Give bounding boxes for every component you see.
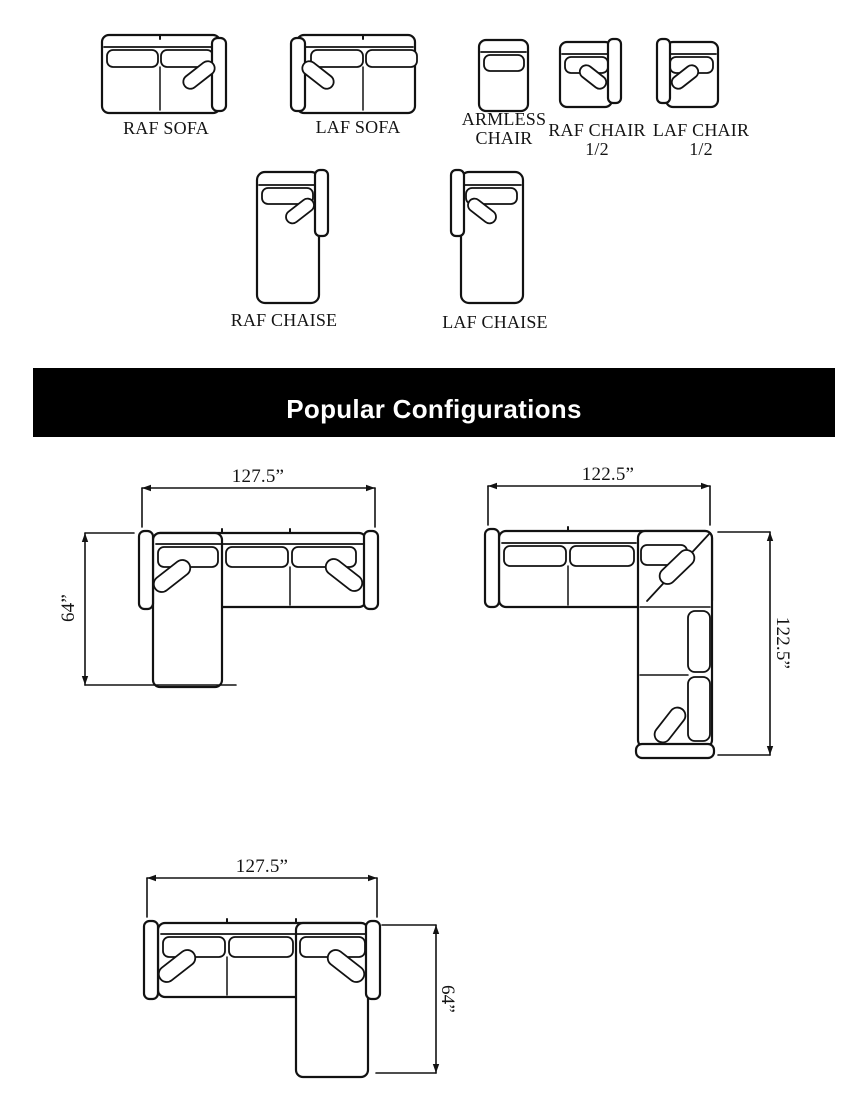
- banner-title: Popular Configurations: [286, 394, 581, 425]
- laf-chaise-drawing: [451, 170, 523, 303]
- laf-chair-half-drawing: [657, 39, 718, 107]
- label-laf-chaise: LAF CHAISE: [442, 313, 548, 332]
- popular-configurations-banner: Popular Configurations: [33, 368, 835, 437]
- armless-chair-drawing: [479, 40, 528, 111]
- config1-width-dimension: 127.5”: [232, 466, 284, 488]
- config-1-drawing: [82, 485, 378, 687]
- config1-depth-dimension: 64”: [58, 594, 80, 622]
- config2-depth-dimension: 122.5”: [771, 617, 793, 669]
- label-raf-sofa: RAF SOFA: [123, 119, 209, 138]
- raf-chair-half-drawing: [560, 39, 621, 107]
- config-3-drawing: [144, 875, 439, 1077]
- config3-depth-dimension: 64”: [436, 985, 458, 1013]
- label-laf-sofa: LAF SOFA: [316, 118, 401, 137]
- line-art-layer: [0, 0, 852, 1116]
- label-raf-chaise: RAF CHAISE: [231, 311, 338, 330]
- label-armless-chair: ARMLESS CHAIR: [454, 110, 554, 148]
- laf-sofa-drawing: [291, 35, 417, 113]
- label-raf-chair-half: RAF CHAIR 1/2: [544, 121, 650, 159]
- config3-width-dimension: 127.5”: [236, 856, 288, 878]
- config2-width-dimension: 122.5”: [582, 464, 634, 486]
- config-2-drawing: [485, 483, 773, 758]
- raf-chaise-drawing: [257, 170, 328, 303]
- label-laf-chair-half: LAF CHAIR 1/2: [648, 121, 754, 159]
- raf-sofa-drawing: [102, 35, 226, 113]
- spec-sheet-page: RAF SOFA LAF SOFA ARMLESS CHAIR RAF CHAI…: [0, 0, 852, 1116]
